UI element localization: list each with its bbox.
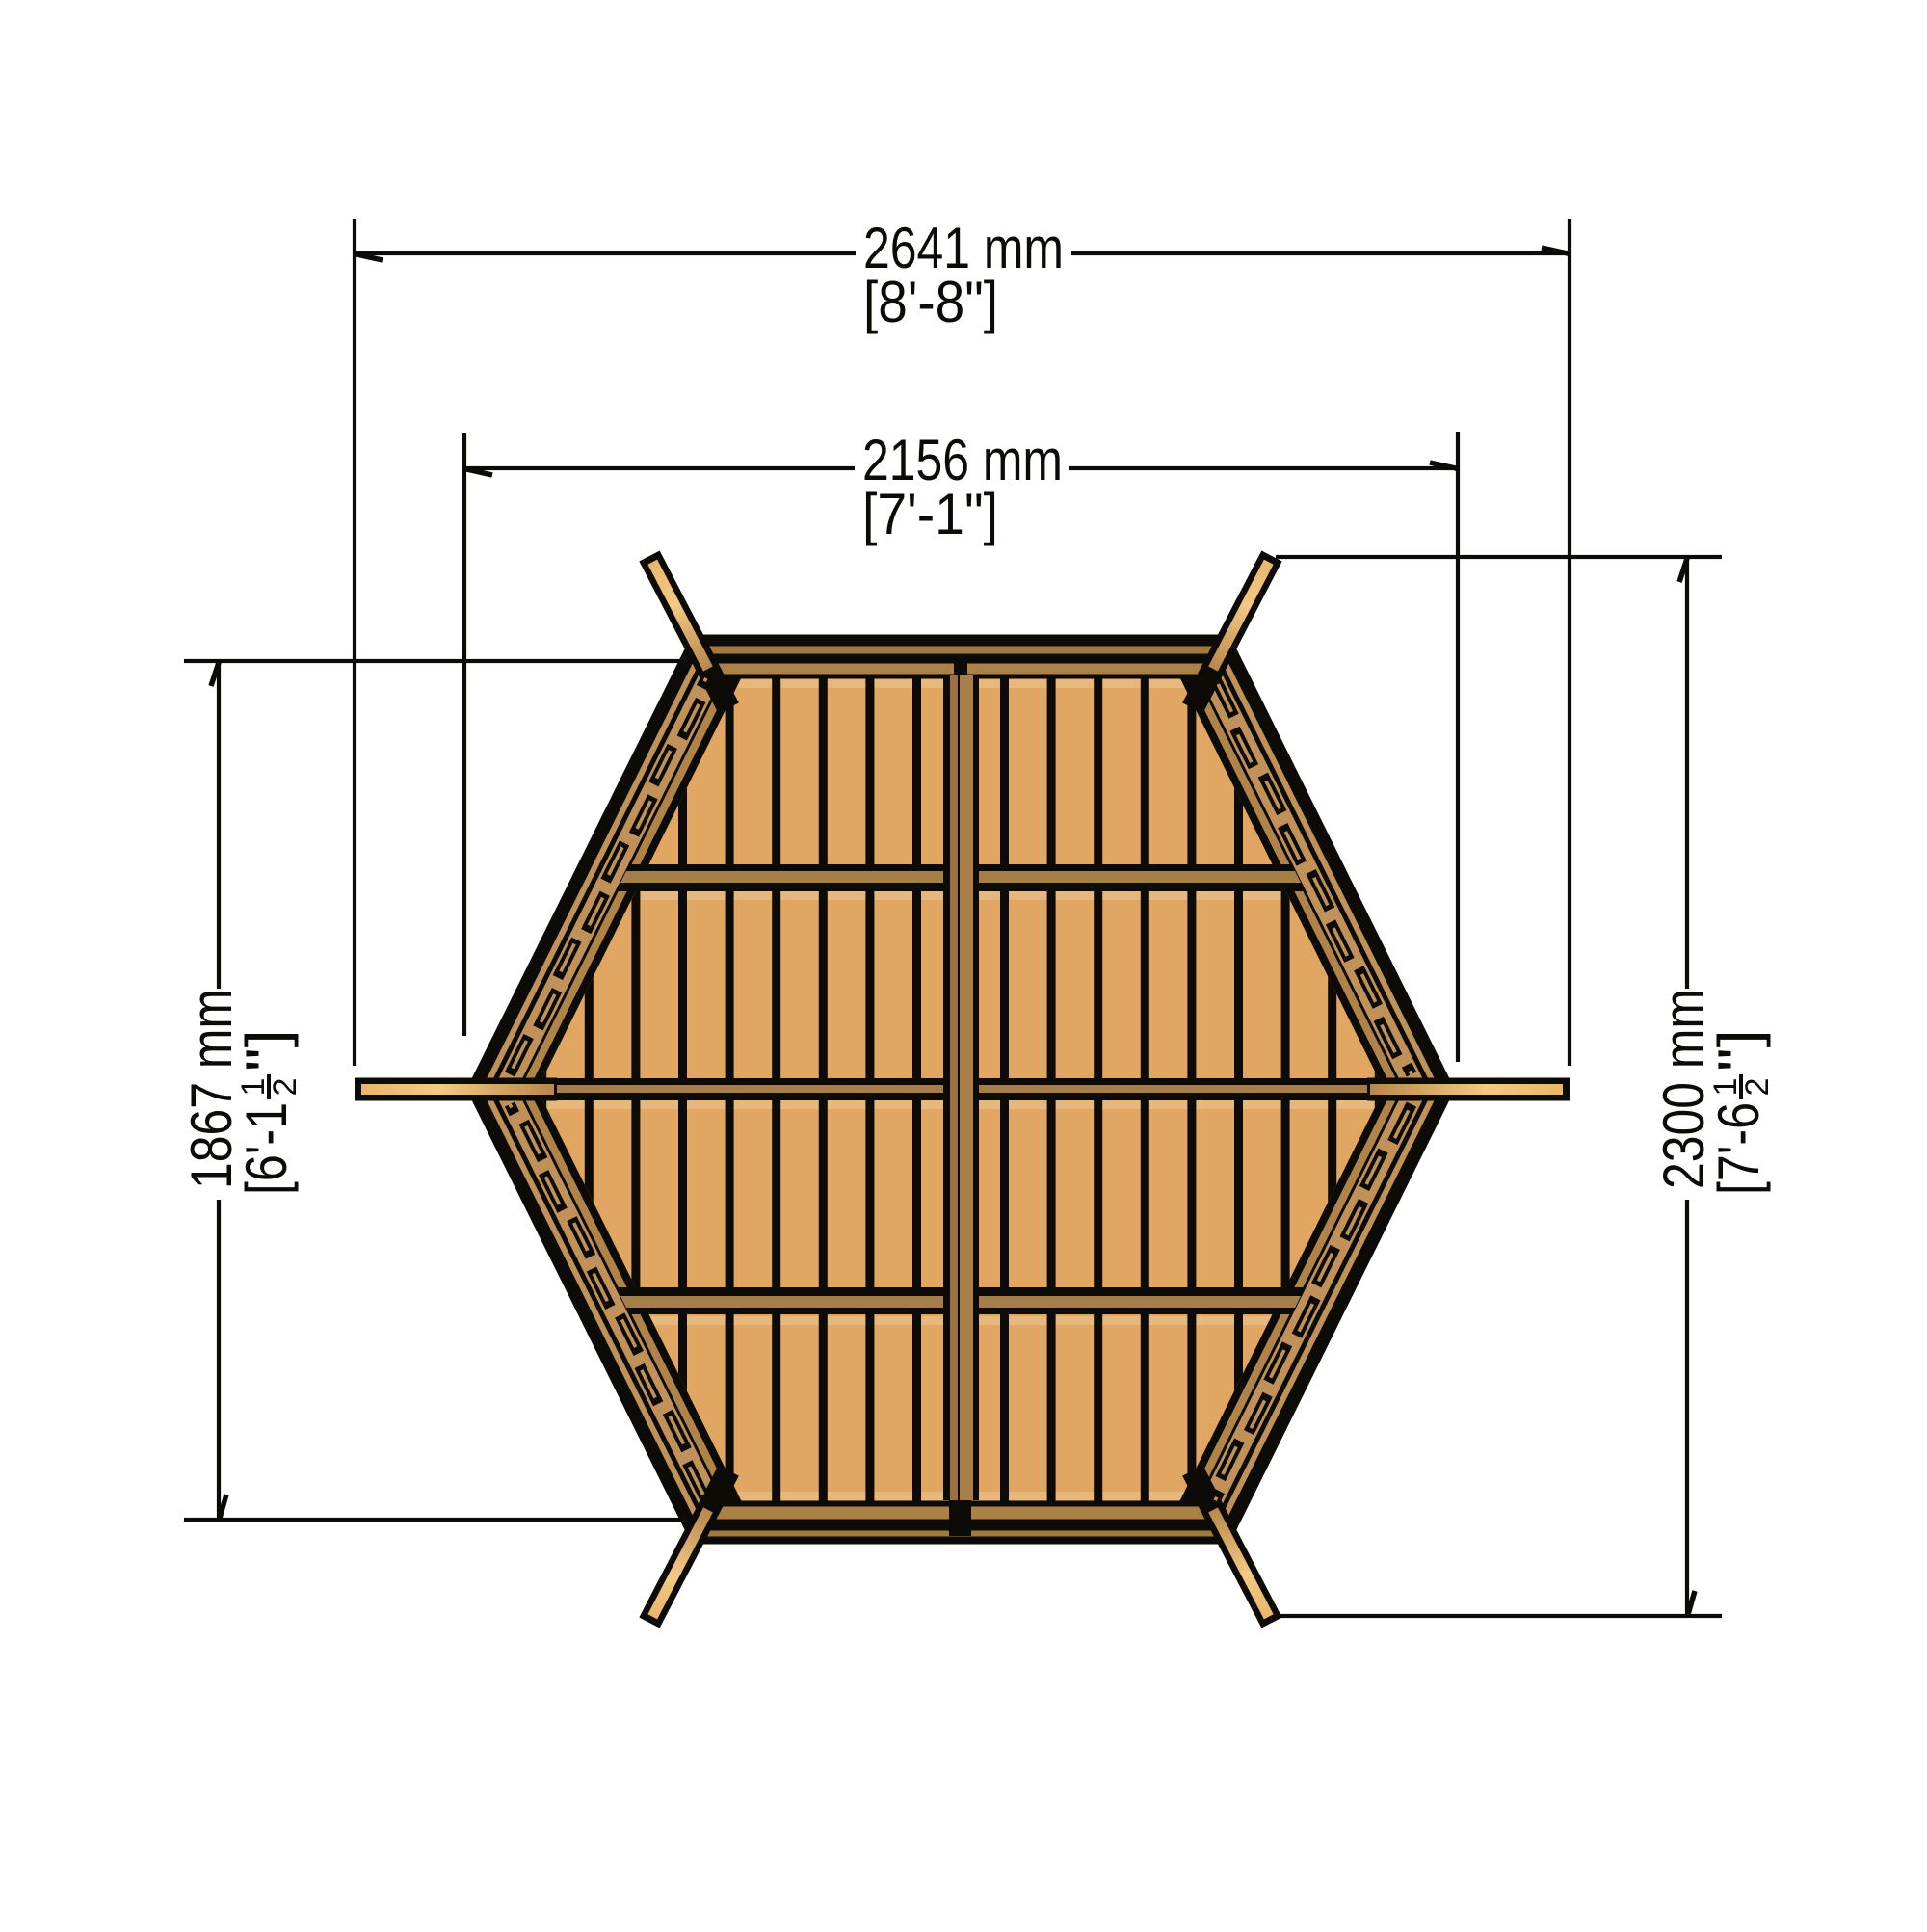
svg-text:[7'-1"]: [7'-1"] <box>862 482 998 546</box>
svg-text:"]: "] <box>1706 1029 1771 1072</box>
svg-text:[6'-1: [6'-1 <box>234 1102 299 1195</box>
svg-text:2: 2 <box>267 1078 304 1097</box>
svg-text:2: 2 <box>1739 1078 1776 1097</box>
svg-text:"]: "] <box>234 1029 299 1072</box>
svg-text:[8'-8"]: [8'-8"] <box>863 270 998 334</box>
svg-text:[7'-6: [7'-6 <box>1706 1102 1771 1195</box>
